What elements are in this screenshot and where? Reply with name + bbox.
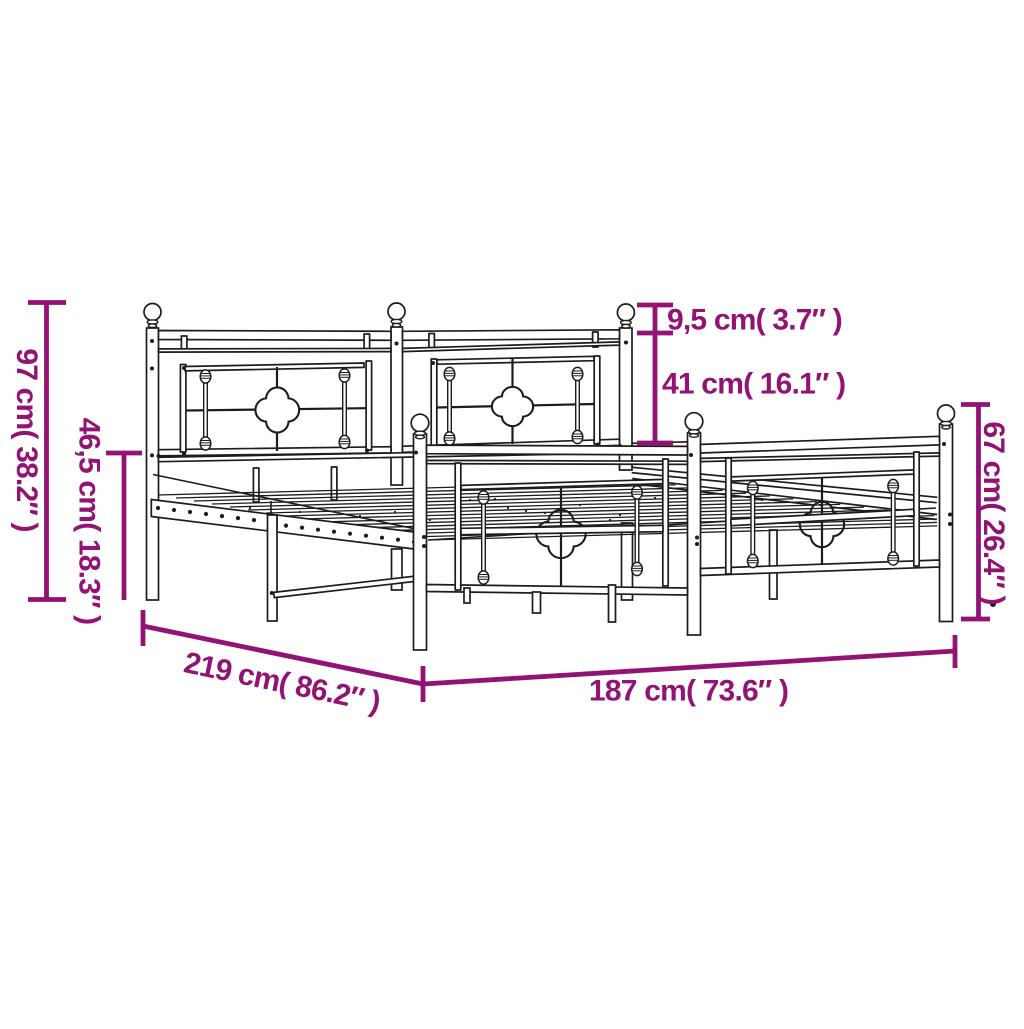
svg-text:97 cm( 38.2″ ): 97 cm( 38.2″ ) [10, 348, 43, 531]
svg-text:41 cm( 16.1″ ): 41 cm( 16.1″ ) [662, 368, 845, 401]
svg-text:187 cm( 73.6″ ): 187 cm( 73.6″ ) [589, 675, 788, 708]
svg-text:46,5 cm( 18.3″ ): 46,5 cm( 18.3″ ) [73, 418, 106, 625]
svg-text:67 cm( 26.4″ ): 67 cm( 26.4″ ) [977, 421, 1010, 604]
svg-text:9,5 cm( 3.7″ ): 9,5 cm( 3.7″ ) [667, 304, 842, 337]
